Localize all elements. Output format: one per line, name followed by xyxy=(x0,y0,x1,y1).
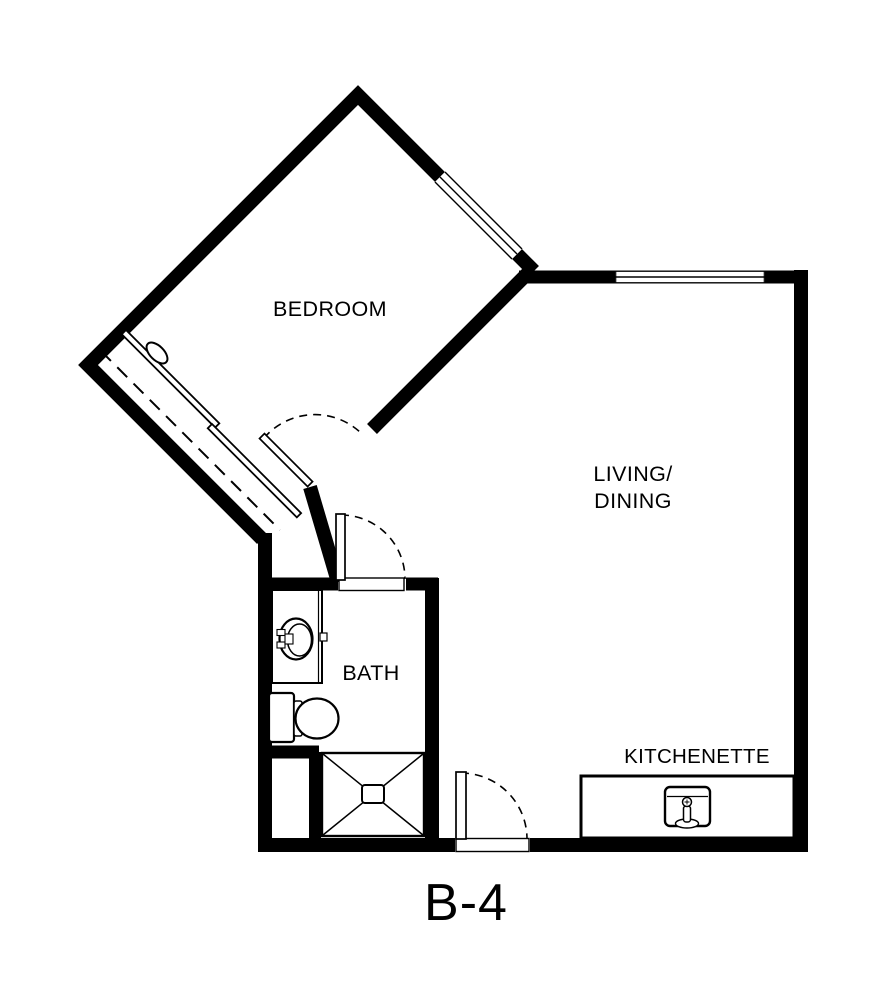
floor-plan-b4: BEDROOM LIVING/ DINING BATH KITCHENETTE … xyxy=(0,0,885,998)
bath-label: BATH xyxy=(342,661,399,685)
vanity-sink xyxy=(272,590,327,683)
toilet-tank xyxy=(269,693,294,742)
faucet-stem xyxy=(684,806,691,822)
entry-door-leaf xyxy=(456,772,466,839)
kitchen-sink xyxy=(665,787,710,828)
entry-door-threshold xyxy=(456,839,529,852)
living-dining-label-line2: DINING xyxy=(594,489,672,513)
vanity-handle xyxy=(320,633,327,641)
bedroom-label: BEDROOM xyxy=(273,297,387,321)
floor-plan-page: BEDROOM LIVING/ DINING BATH KITCHENETTE … xyxy=(0,0,885,998)
living-dining-label-line1: LIVING/ xyxy=(593,462,672,486)
toilet-bowl xyxy=(296,699,339,739)
sink-faucet xyxy=(277,630,285,636)
bath-door-leaf xyxy=(336,514,345,580)
shower-drain xyxy=(362,785,384,803)
unit-plan-title: B-4 xyxy=(424,874,508,932)
shower xyxy=(322,753,424,836)
living-dining-window xyxy=(615,271,765,284)
bath-door-threshold xyxy=(339,578,404,591)
kitchenette-label: KITCHENETTE xyxy=(624,745,770,768)
